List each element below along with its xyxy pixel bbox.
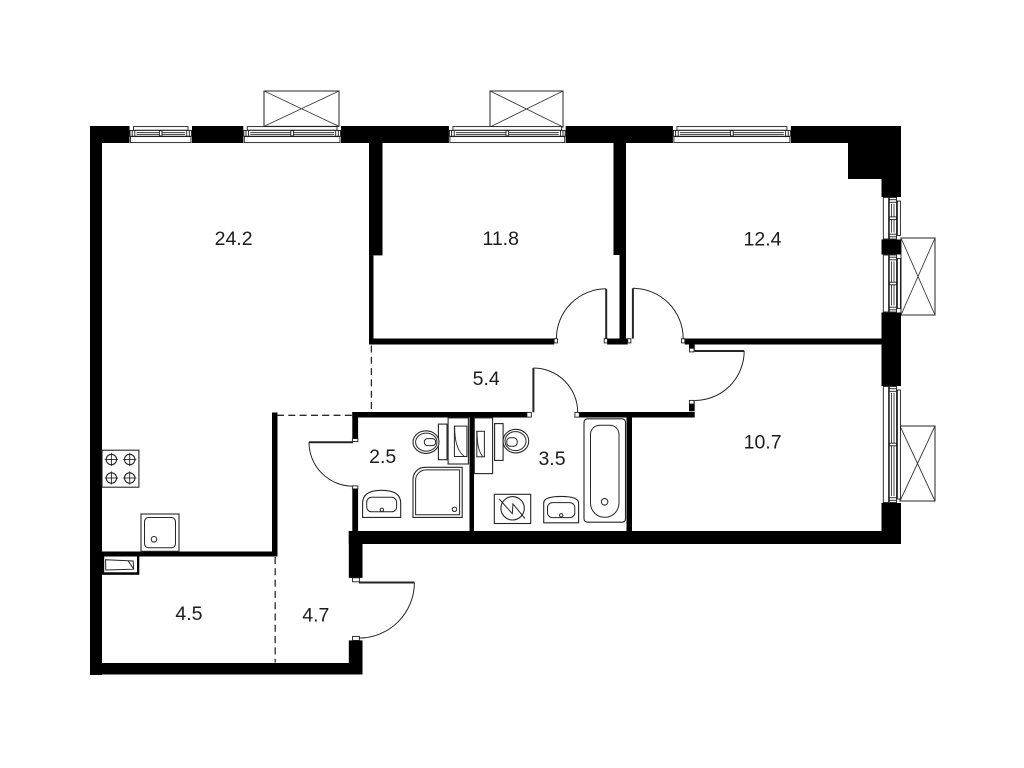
svg-text:11.8: 11.8 — [482, 228, 519, 250]
svg-text:10.7: 10.7 — [744, 432, 782, 454]
svg-text:4.5: 4.5 — [175, 603, 202, 625]
svg-text:24.2: 24.2 — [215, 228, 253, 250]
svg-text:3.5: 3.5 — [538, 448, 565, 470]
svg-text:2.5: 2.5 — [369, 446, 396, 468]
svg-text:12.4: 12.4 — [744, 228, 782, 250]
svg-text:4.7: 4.7 — [302, 605, 329, 627]
svg-text:5.4: 5.4 — [473, 368, 500, 390]
